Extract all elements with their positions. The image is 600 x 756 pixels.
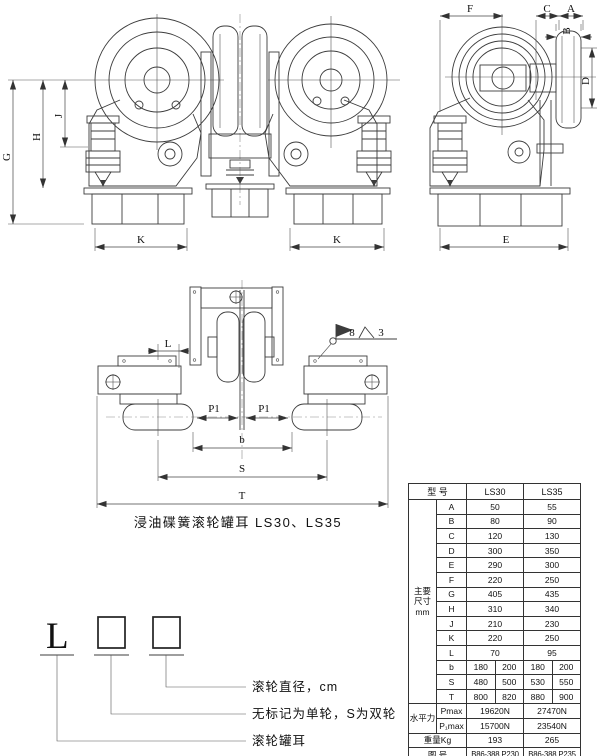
dim-label-P1-right: P1 [258, 403, 270, 415]
dim-label-P1-left: P1 [208, 403, 220, 415]
legend-box-2 [153, 617, 180, 648]
dim-G-ls30: 405 [467, 587, 524, 602]
dim-label-T: T [239, 490, 246, 502]
dim-E-ls35: 300 [524, 558, 581, 573]
dim-b-ls30b: 200 [495, 660, 524, 675]
dim-T-ls35b: 900 [552, 689, 581, 704]
dim-A-key: A [437, 500, 467, 515]
model-ls30-cell: LS30 [467, 484, 524, 500]
dim-J-ls35: 230 [524, 616, 581, 631]
table-row-weight: 重量Kg 193 265 [409, 733, 581, 748]
dim-label-b-plan: b [239, 434, 245, 446]
force-pmax-ls30: 19620N [467, 704, 524, 719]
view-side-profile [430, 14, 596, 226]
drawing-caption: 浸油碟簧滚轮罐耳 LS30、LS35 [118, 512, 358, 531]
table-header-row: 型 号 LS30 LS35 [409, 484, 581, 500]
dim-H-ls30: 310 [467, 602, 524, 617]
dim-D-ls30: 300 [467, 543, 524, 558]
dim-L-key: L [437, 645, 467, 660]
model-label-cell: 型 号 [409, 484, 467, 500]
dim-G-key: G [437, 587, 467, 602]
group-label-line3: mm [409, 607, 436, 618]
legend-callout-diameter: 滚轮直径，cm [252, 679, 338, 694]
weight-ls30: 193 [467, 733, 524, 748]
dim-T-key: T [437, 689, 467, 704]
force-pmax-key: Pmax [437, 704, 467, 719]
force-p1max-key: P₁max [437, 718, 467, 733]
legend-prefix-letter: L [46, 616, 69, 657]
legend-box-1 [98, 617, 125, 648]
drawing-page: G H J K [0, 0, 600, 756]
view-side-right: K [265, 16, 400, 251]
dim-A-ls35: 55 [524, 500, 581, 515]
view-side-left-dimensions: G H J K [1, 80, 187, 251]
dim-C-key: C [437, 529, 467, 544]
weld-symbol: 8 3 [318, 324, 397, 359]
dim-K-ls30: 220 [467, 631, 524, 646]
dim-J-key: J [437, 616, 467, 631]
dim-D-key: D [437, 543, 467, 558]
dim-H-ls35: 340 [524, 602, 581, 617]
view-front-double-wheel [201, 14, 279, 217]
dim-b-ls30a: 180 [467, 660, 496, 675]
dim-label-A: A [567, 3, 575, 15]
dim-K-key: K [437, 631, 467, 646]
dim-E-key: E [437, 558, 467, 573]
model-designation-legend: L 滚轮直径，cm 无标记为单轮，S为双轮 滚轮罐耳 [40, 616, 396, 748]
dim-b-key: b [437, 660, 467, 675]
dim-S-ls30b: 500 [495, 675, 524, 690]
table-row-A: 主要 尺寸 mm A 50 55 [409, 500, 581, 515]
group-label-line2: 尺寸 [409, 596, 436, 607]
dim-D-ls35: 350 [524, 543, 581, 558]
dim-label-G: G [1, 153, 13, 161]
dim-label-S: S [239, 463, 245, 475]
weld-number: 8 [349, 327, 355, 339]
dim-J-ls30: 210 [467, 616, 524, 631]
dim-b-ls35a: 180 [524, 660, 553, 675]
dim-T-ls30a: 800 [467, 689, 496, 704]
table-row-figno: 图 号 B86-388.P230 B86-388.P235 [409, 748, 581, 756]
dim-label-K-right: K [333, 234, 341, 246]
figno-ls30: B86-388.P230 [467, 748, 524, 756]
dim-G-ls35: 435 [524, 587, 581, 602]
dim-C-ls30: 120 [467, 529, 524, 544]
dim-label-B: B [561, 27, 573, 34]
dim-label-E: E [503, 234, 510, 246]
dim-F-key: F [437, 572, 467, 587]
view-side-profile-dimensions: F C A B D E [440, 3, 597, 251]
dim-K-ls35: 250 [524, 631, 581, 646]
legend-callout-name: 滚轮罐耳 [252, 733, 306, 748]
figno-label: 图 号 [409, 748, 467, 756]
dim-label-J: J [53, 113, 65, 118]
group-label-line1: 主要 [409, 586, 436, 597]
dim-F-ls30: 220 [467, 572, 524, 587]
table-row-pmax: 水平力 Pmax 19620N 27470N [409, 704, 581, 719]
dim-A-ls30: 50 [467, 500, 524, 515]
dim-B-key: B [437, 514, 467, 529]
dim-E-ls30: 290 [467, 558, 524, 573]
force-p1max-ls35: 23540N [524, 718, 581, 733]
figno-ls35: B86-388.P235 [524, 748, 581, 756]
weight-label: 重量Kg [409, 733, 467, 748]
force-pmax-ls35: 27470N [524, 704, 581, 719]
dim-label-D: D [580, 77, 592, 85]
dim-S-key: S [437, 675, 467, 690]
plan-view-dimensions: L P1 P1 b S T [97, 338, 388, 508]
dim-B-ls30: 80 [467, 514, 524, 529]
weld-grade: 3 [378, 327, 384, 339]
dim-b-ls35b: 200 [552, 660, 581, 675]
dim-L-ls30: 70 [467, 645, 524, 660]
legend-callout-type: 无标记为单轮，S为双轮 [252, 707, 396, 721]
dim-label-H: H [31, 133, 43, 141]
force-group-label: 水平力 [409, 704, 437, 733]
dim-C-ls35: 130 [524, 529, 581, 544]
dim-T-ls30b: 820 [495, 689, 524, 704]
view-side-left [8, 14, 224, 224]
dim-S-ls30a: 480 [467, 675, 496, 690]
force-p1max-ls30: 15700N [467, 718, 524, 733]
dim-S-ls35b: 550 [552, 675, 581, 690]
dim-label-F: F [467, 3, 473, 15]
weight-ls35: 265 [524, 733, 581, 748]
dim-S-ls35a: 530 [524, 675, 553, 690]
dim-H-key: H [437, 602, 467, 617]
dim-F-ls35: 250 [524, 572, 581, 587]
dim-L-ls35: 95 [524, 645, 581, 660]
dim-label-K-left: K [137, 234, 145, 246]
dim-label-L-plan: L [165, 338, 172, 350]
dim-T-ls35a: 880 [524, 689, 553, 704]
dim-B-ls35: 90 [524, 514, 581, 529]
spec-table: 型 号 LS30 LS35 主要 尺寸 mm A 50 55 B 80 90 C… [408, 483, 581, 756]
dimension-group-label: 主要 尺寸 mm [409, 500, 437, 704]
dim-label-C: C [543, 3, 550, 15]
model-ls35-cell: LS35 [524, 484, 581, 500]
